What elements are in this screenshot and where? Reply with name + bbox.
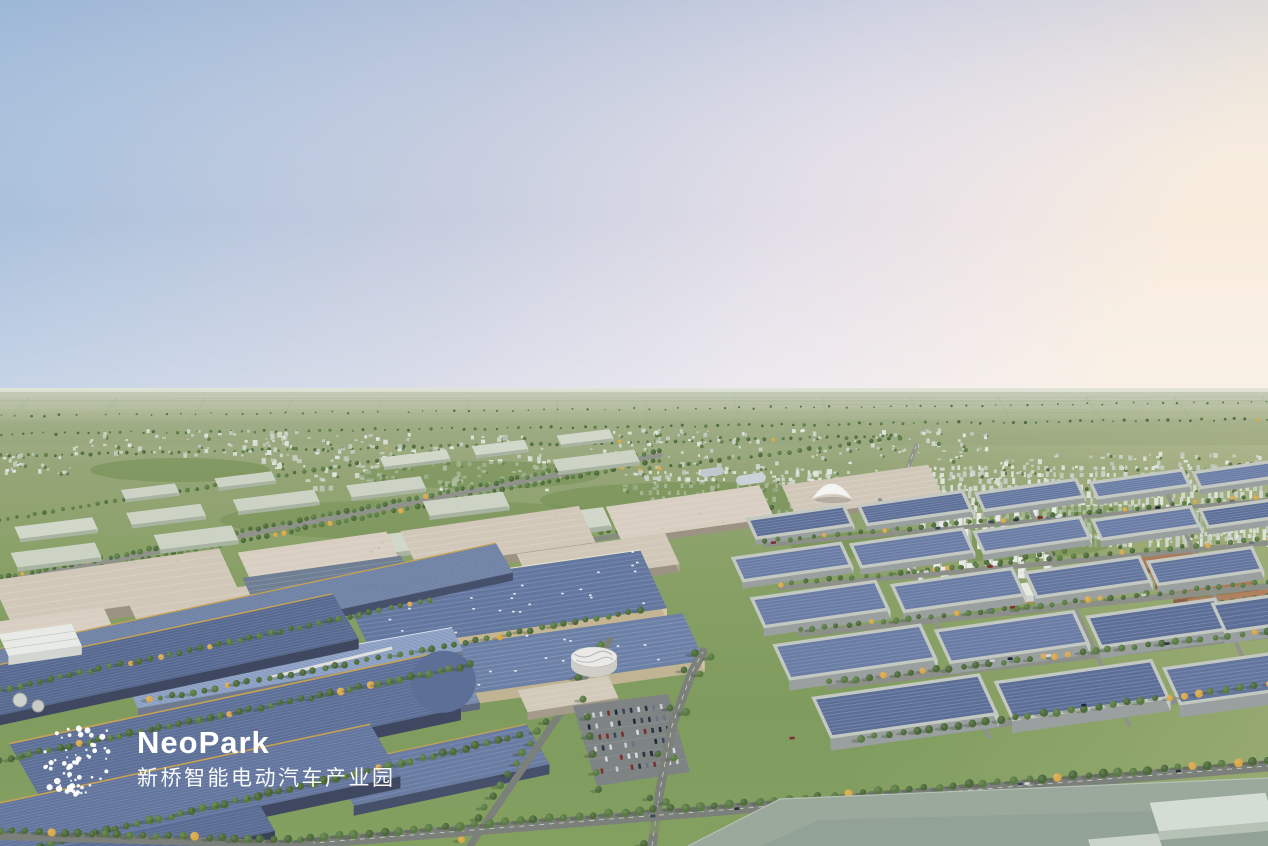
- logo-wordmark: NeoPark: [137, 727, 396, 758]
- neopark-logo-dot-swirl-icon: [36, 712, 122, 804]
- aerial-rendering: NeoPark 新桥智能电动汽车产业园: [0, 0, 1268, 846]
- round-tank-building: [571, 647, 617, 677]
- logo-subtitle-chinese: 新桥智能电动汽车产业园: [137, 768, 396, 789]
- neopark-logo-text: NeoPark 新桥智能电动汽车产业园: [137, 727, 396, 789]
- neopark-logo: NeoPark 新桥智能电动汽车产业园: [36, 712, 396, 804]
- sky: [0, 0, 1268, 398]
